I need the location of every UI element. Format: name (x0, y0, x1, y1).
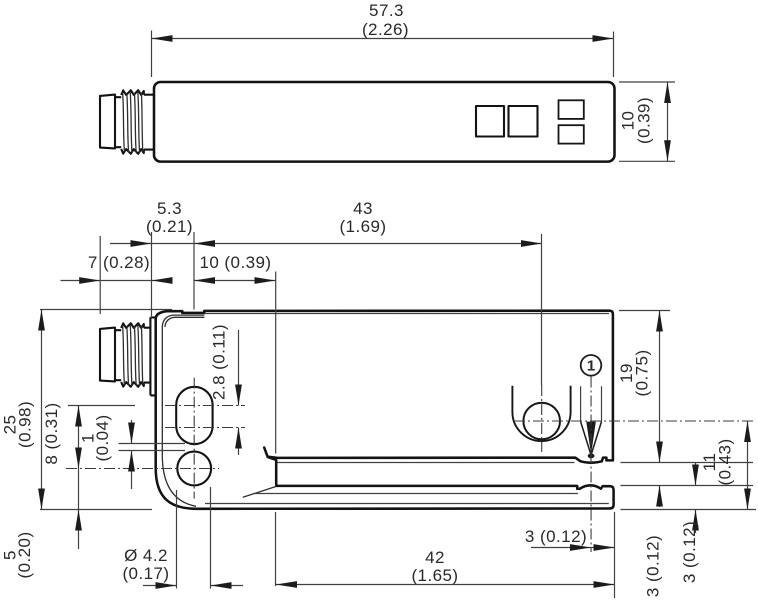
svg-text:(0.20): (0.20) (15, 531, 34, 578)
svg-text:(1.69): (1.69) (339, 217, 386, 236)
svg-text:1: 1 (587, 358, 595, 375)
svg-text:3 (0.12): 3 (0.12) (680, 521, 699, 583)
svg-text:2.8 (0.11): 2.8 (0.11) (210, 324, 229, 400)
svg-text:42: 42 (425, 548, 445, 567)
svg-text:3 (0.12): 3 (0.12) (525, 527, 587, 546)
svg-text:10 (0.39): 10 (0.39) (199, 253, 271, 272)
svg-text:(0.21): (0.21) (146, 217, 193, 236)
svg-text:(0.04): (0.04) (93, 414, 112, 461)
svg-text:5.3: 5.3 (157, 199, 182, 218)
svg-text:(2.26): (2.26) (362, 20, 409, 39)
svg-text:(1.65): (1.65) (411, 566, 458, 585)
svg-text:8 (0.31): 8 (0.31) (42, 402, 61, 464)
svg-text:Ø 4.2: Ø 4.2 (124, 546, 168, 565)
svg-text:7 (0.28): 7 (0.28) (88, 253, 150, 272)
svg-text:(0.17): (0.17) (122, 564, 169, 583)
svg-text:(0.39): (0.39) (635, 97, 654, 144)
svg-text:(0.75): (0.75) (632, 349, 651, 396)
svg-text:57.3: 57.3 (369, 1, 404, 20)
svg-text:(0.43): (0.43) (716, 438, 735, 485)
svg-text:3 (0.12): 3 (0.12) (644, 535, 663, 597)
svg-text:(0.98): (0.98) (16, 401, 35, 448)
svg-text:43: 43 (353, 199, 373, 218)
